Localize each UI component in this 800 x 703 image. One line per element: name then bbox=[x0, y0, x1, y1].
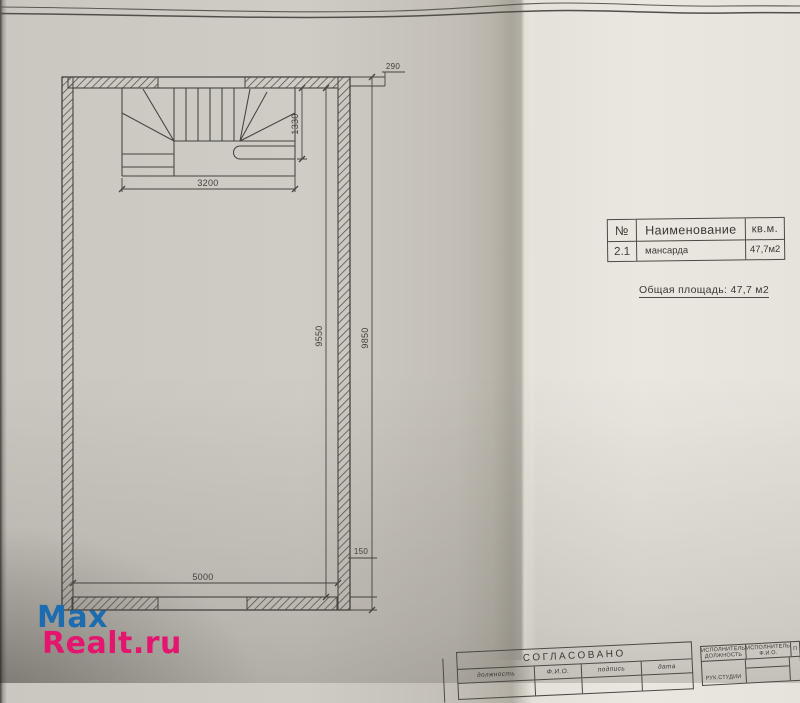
col-signature: подпись bbox=[582, 662, 643, 678]
watermark-line2: Realt.ru bbox=[42, 631, 182, 657]
sheet-edge-lines bbox=[0, 3, 800, 17]
dim-1330: 1330 bbox=[290, 113, 300, 134]
dim-9850: 9850 bbox=[360, 327, 370, 348]
area-table: № Наименование кв.м. 2.1 мансарда 47,7м2 bbox=[607, 217, 786, 262]
dim-3200: 3200 bbox=[197, 178, 218, 188]
room-walls bbox=[62, 77, 350, 610]
room-name-cell: мансарда bbox=[637, 240, 746, 260]
total-area-label: Общая площадь: 47,7 м2 bbox=[639, 284, 769, 298]
dim-9550: 9550 bbox=[314, 325, 324, 346]
executor-role-value: РУК.СТУДИИ bbox=[702, 660, 747, 685]
area-table-grid: № Наименование кв.м. 2.1 мансарда 47,7м2 bbox=[607, 217, 786, 262]
executor-row: РУК.СТУДИИ bbox=[701, 657, 800, 686]
dim-150: 150 bbox=[354, 547, 368, 556]
floor-plan-drawing: 3200 1330 290 9550 9850 150 5000 bbox=[0, 0, 800, 683]
executor-role-header: ИСПОЛНИТЕЛЬ ДОЛЖНОСТЬ bbox=[701, 645, 747, 661]
stair-direction-line bbox=[234, 146, 296, 159]
room-number-cell: 2.1 bbox=[608, 242, 637, 261]
title-block-executor: ИСПОЛНИТЕЛЬ ДОЛЖНОСТЬ ИСПОЛНИТЕЛЬ Ф.И.О.… bbox=[700, 641, 800, 686]
area-table-header-num: № bbox=[608, 220, 637, 242]
executor-extra-header: П bbox=[791, 642, 800, 656]
col-name: Ф.И.О. bbox=[535, 664, 583, 679]
area-table-header-name: Наименование bbox=[637, 218, 746, 241]
area-table-header-unit: кв.м. bbox=[746, 218, 784, 240]
dimension-labels: 3200 1330 290 9550 9850 150 5000 bbox=[192, 62, 400, 582]
dim-5000: 5000 bbox=[192, 572, 213, 582]
executor-name-header: ИСПОЛНИТЕЛЬ Ф.И.О. bbox=[746, 642, 792, 658]
dimension-lines bbox=[70, 72, 405, 613]
dim-290: 290 bbox=[386, 62, 400, 71]
title-block-side-strip bbox=[442, 658, 458, 703]
room-area-cell: 47,7м2 bbox=[746, 240, 784, 259]
watermark: Max Realt.ru bbox=[37, 605, 182, 656]
col-date: дата bbox=[642, 659, 693, 674]
staircase bbox=[122, 88, 295, 176]
title-block-approval: СОГЛАСОВАНО должность Ф.И.О. подпись дат… bbox=[456, 641, 694, 700]
scanned-floorplan-photo: { "watermark": { "line1": "Max", "line2"… bbox=[0, 0, 800, 683]
